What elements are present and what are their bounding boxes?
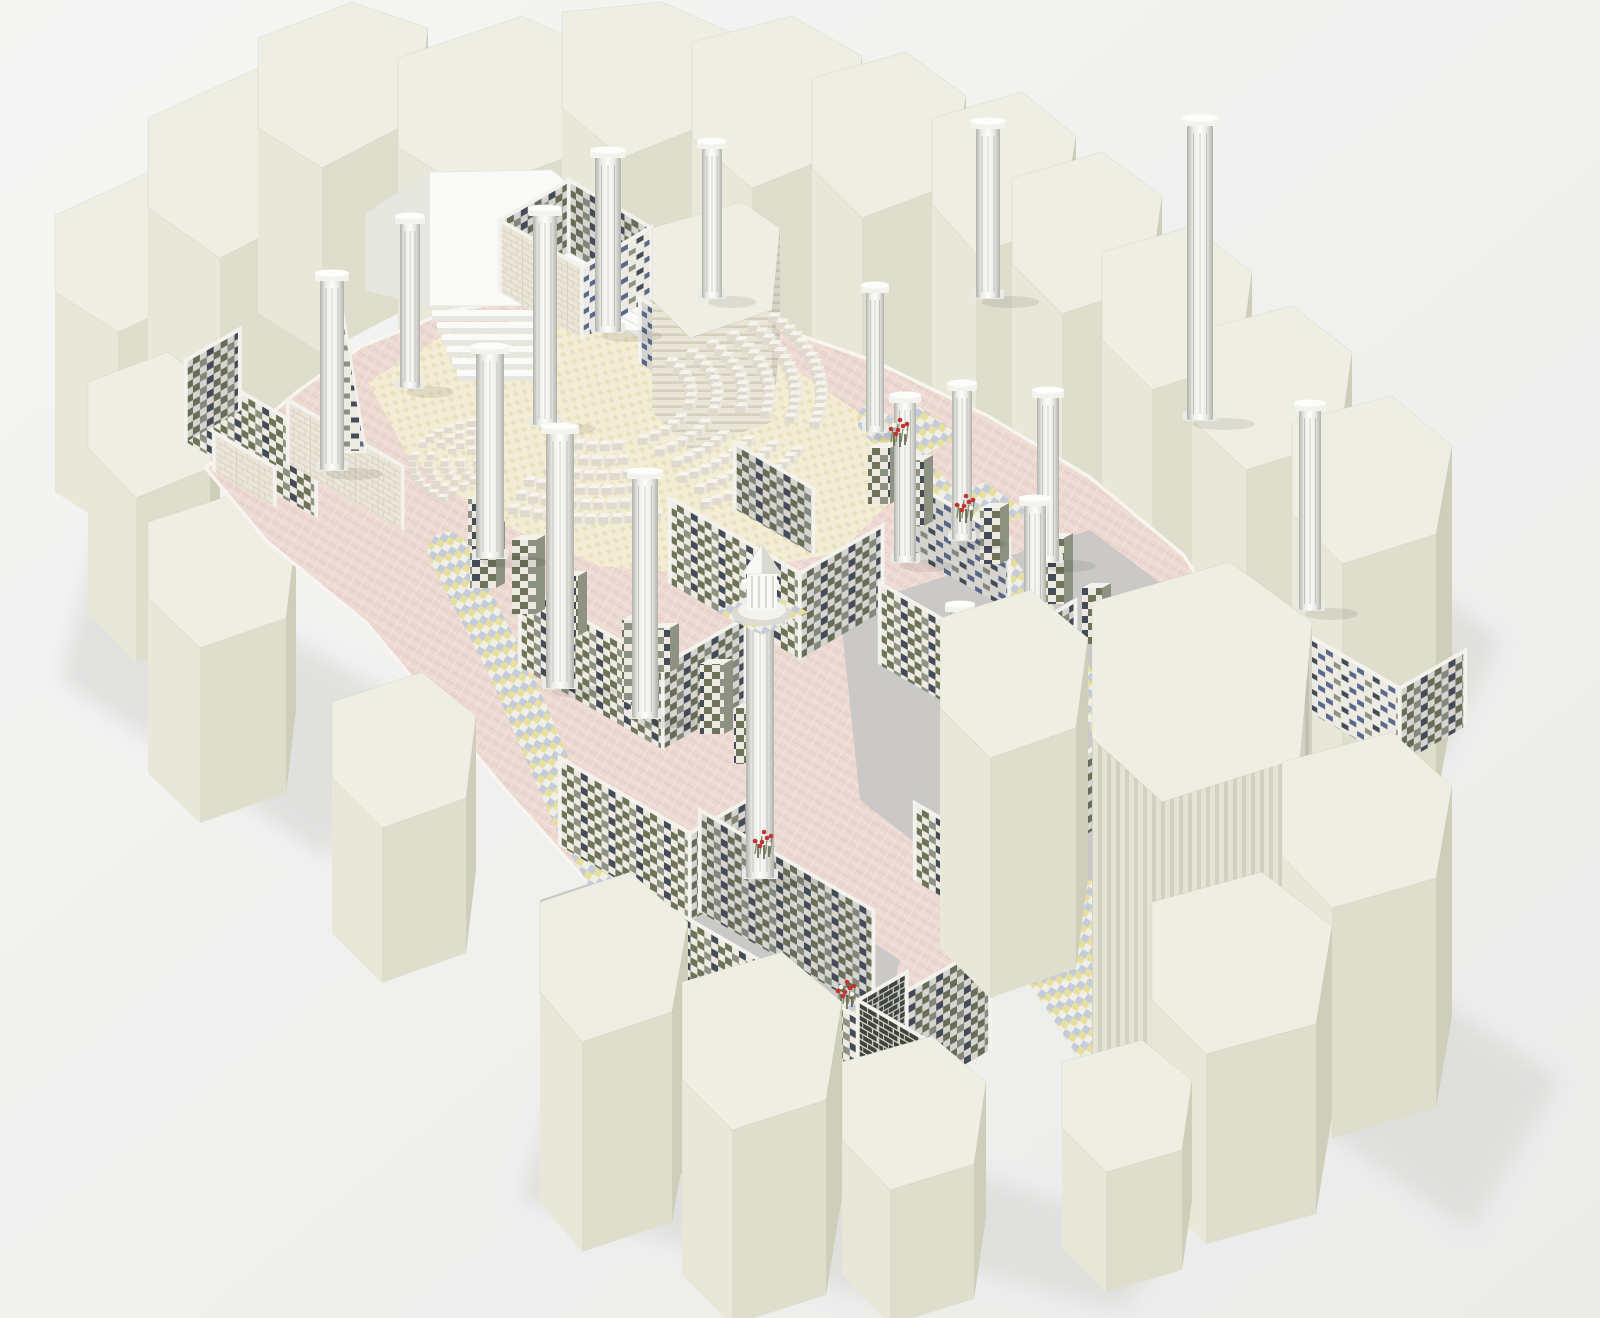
seat-front bbox=[415, 481, 423, 487]
plant-berry bbox=[964, 494, 969, 499]
seat-front bbox=[578, 459, 588, 466]
tower-side bbox=[724, 659, 733, 734]
mass-face bbox=[890, 1164, 974, 1318]
seat-front bbox=[441, 468, 449, 474]
building-mass bbox=[332, 672, 476, 983]
seat-front bbox=[520, 510, 530, 517]
seat-front bbox=[466, 439, 474, 445]
tower-front bbox=[512, 540, 536, 614]
seat-front bbox=[516, 494, 526, 501]
seat-front bbox=[618, 458, 628, 465]
seat-front bbox=[408, 468, 416, 474]
mass-face bbox=[1332, 878, 1436, 1138]
seat-front bbox=[524, 480, 534, 487]
seat-front bbox=[456, 444, 464, 450]
plant-berry bbox=[843, 990, 848, 995]
seat-front bbox=[700, 502, 710, 509]
seat-front bbox=[596, 474, 606, 481]
building-mass bbox=[682, 952, 842, 1318]
seat-front bbox=[671, 461, 681, 468]
mass-face bbox=[940, 708, 990, 998]
column-capital-top bbox=[945, 601, 975, 608]
seat-front bbox=[438, 497, 446, 503]
seat-front bbox=[467, 449, 475, 455]
checkered-tower bbox=[700, 659, 733, 734]
wall-end-post bbox=[238, 326, 242, 412]
seat-front bbox=[421, 487, 429, 493]
seat-front bbox=[694, 487, 704, 494]
mass-face bbox=[382, 798, 466, 983]
tower-front bbox=[980, 508, 1000, 564]
plant-berry bbox=[971, 498, 976, 503]
seat-front bbox=[533, 513, 543, 520]
seat-front bbox=[784, 417, 794, 424]
wall-end-post bbox=[733, 440, 737, 510]
seat-front bbox=[610, 473, 620, 480]
plant-berry bbox=[852, 984, 857, 989]
seat-front bbox=[456, 461, 464, 467]
seat-front bbox=[462, 474, 470, 480]
wall-end-post bbox=[878, 580, 882, 666]
column-capital-top bbox=[315, 270, 349, 277]
building-mass bbox=[540, 872, 688, 1252]
seat-front bbox=[426, 437, 434, 443]
tower-side bbox=[670, 623, 679, 672]
seat-front bbox=[605, 459, 615, 466]
building-mass bbox=[842, 1036, 986, 1318]
seat-front bbox=[457, 468, 465, 474]
column-capital-top bbox=[528, 205, 562, 212]
seat-front bbox=[434, 432, 442, 438]
plant-berry bbox=[760, 840, 765, 845]
seat-front bbox=[410, 455, 418, 461]
plant-berry bbox=[898, 418, 903, 423]
wall-end-post bbox=[580, 264, 584, 340]
seat-front bbox=[677, 476, 687, 483]
wall-end-post bbox=[567, 177, 571, 253]
plant-berry bbox=[896, 428, 901, 433]
checkered-tower bbox=[980, 503, 1009, 564]
seat-front bbox=[620, 502, 630, 509]
seat-front bbox=[613, 443, 623, 450]
seat-front bbox=[432, 481, 440, 487]
plant-berry bbox=[892, 423, 897, 428]
wall-end-post bbox=[401, 463, 405, 531]
seat-front bbox=[606, 503, 616, 510]
plant-berry bbox=[848, 986, 853, 991]
render-viewport bbox=[0, 0, 1600, 1318]
wall-end-post bbox=[498, 217, 502, 293]
column-capital-top bbox=[395, 213, 425, 220]
column-capital-top bbox=[471, 343, 509, 350]
column-capital-top bbox=[1294, 400, 1326, 407]
seat-front bbox=[637, 438, 647, 445]
seat-front bbox=[575, 488, 585, 495]
tower-side bbox=[924, 455, 933, 526]
wall-end-post bbox=[856, 997, 860, 1067]
building-mass bbox=[940, 590, 1088, 998]
wall-end-post bbox=[661, 662, 665, 750]
wall-end-post bbox=[184, 357, 188, 443]
tower-side bbox=[536, 535, 545, 614]
seat-front bbox=[654, 449, 664, 456]
seat-front bbox=[445, 438, 453, 444]
plant-berry bbox=[841, 994, 846, 999]
tower-front bbox=[868, 448, 890, 504]
wall-end-post bbox=[286, 397, 290, 465]
mass-face bbox=[200, 618, 286, 823]
mass-face bbox=[582, 1012, 672, 1252]
seat-front bbox=[586, 444, 596, 451]
seat-front bbox=[601, 488, 611, 495]
seat-front bbox=[598, 517, 608, 524]
plant-berry bbox=[836, 989, 841, 994]
seat-front bbox=[588, 488, 598, 495]
column-capital-top bbox=[1182, 115, 1218, 122]
seat-front bbox=[528, 497, 538, 504]
wall-end-post bbox=[698, 807, 702, 913]
plant-berry bbox=[767, 842, 772, 847]
plant-berry bbox=[969, 506, 974, 511]
seat-front bbox=[591, 459, 601, 466]
wall-end-post bbox=[212, 429, 216, 473]
plant-berry bbox=[960, 508, 965, 513]
plant-berry bbox=[769, 834, 774, 839]
plant-berry bbox=[850, 992, 855, 997]
seat-front bbox=[408, 462, 416, 468]
seat-front bbox=[450, 480, 458, 486]
seat-front bbox=[508, 508, 518, 515]
seat-front bbox=[419, 442, 427, 448]
plant-berry bbox=[756, 835, 761, 840]
seat-front bbox=[536, 483, 546, 490]
seat-front bbox=[760, 411, 770, 418]
mass-face bbox=[1206, 1024, 1316, 1244]
seat-front bbox=[444, 474, 452, 480]
seat-front bbox=[425, 468, 433, 474]
plant-berry bbox=[762, 830, 767, 835]
seat-front bbox=[455, 424, 463, 430]
seat-front bbox=[600, 444, 610, 451]
mass-face bbox=[1106, 1150, 1182, 1292]
mass-face bbox=[990, 728, 1076, 998]
mass-face bbox=[732, 1100, 826, 1318]
plant-berry bbox=[901, 424, 906, 429]
wall-end-post bbox=[273, 464, 277, 508]
tower-front bbox=[700, 664, 724, 734]
column-capital-top bbox=[861, 282, 889, 289]
column-capital-top bbox=[1019, 495, 1051, 502]
seat-front bbox=[424, 461, 432, 467]
plant-berry bbox=[845, 980, 850, 985]
plant-berry bbox=[889, 427, 894, 432]
checkered-tower bbox=[512, 535, 545, 614]
wall-end-post bbox=[913, 800, 917, 882]
plant-berry bbox=[905, 422, 910, 427]
plant-berry bbox=[753, 839, 758, 844]
plant-berry bbox=[894, 432, 899, 437]
seat-front bbox=[429, 492, 437, 498]
wall-end-post bbox=[558, 755, 562, 847]
seat-front bbox=[455, 433, 463, 439]
seat-front bbox=[426, 455, 434, 461]
plant-berry bbox=[958, 499, 963, 504]
seat-front bbox=[611, 517, 621, 524]
seat-front bbox=[440, 461, 448, 467]
seat-front bbox=[593, 503, 603, 510]
seat-front bbox=[439, 486, 447, 492]
wall-end-post bbox=[638, 295, 642, 365]
seat-front bbox=[583, 473, 593, 480]
plant-berry bbox=[955, 503, 960, 508]
seat-front bbox=[459, 485, 467, 491]
wall-end-post bbox=[1463, 647, 1467, 727]
seat-front bbox=[448, 449, 456, 455]
column-capital-top bbox=[947, 380, 977, 387]
column-capital-top bbox=[627, 468, 663, 475]
plant-berry bbox=[765, 836, 770, 841]
seat-front bbox=[411, 475, 419, 481]
column-capital-top bbox=[590, 147, 626, 154]
seat-front bbox=[437, 443, 445, 449]
seat-front bbox=[580, 503, 590, 510]
column-capital-top bbox=[1032, 387, 1064, 394]
seat-front bbox=[448, 491, 456, 497]
seat-front bbox=[573, 443, 583, 450]
plant-berry bbox=[758, 844, 763, 849]
plant-berry bbox=[967, 500, 972, 505]
plant-berry bbox=[839, 985, 844, 990]
seat-front bbox=[444, 428, 452, 434]
wall-end-post bbox=[668, 495, 672, 585]
plant-berry bbox=[962, 504, 967, 509]
architectural-model-render bbox=[0, 0, 1600, 1318]
seat-front bbox=[585, 517, 595, 524]
wall-end-post bbox=[811, 485, 815, 555]
column-capital-top bbox=[697, 138, 727, 145]
seat-front bbox=[468, 421, 476, 427]
seat-front bbox=[683, 403, 693, 410]
column-capital-top bbox=[889, 392, 921, 399]
wall-end-post bbox=[688, 830, 692, 922]
building-mass bbox=[1062, 1040, 1192, 1292]
seat-front bbox=[735, 406, 745, 413]
seat-front bbox=[467, 430, 475, 436]
plant-berry bbox=[903, 430, 908, 435]
seat-front bbox=[615, 487, 625, 494]
seat-front bbox=[809, 422, 819, 429]
column-capital-top bbox=[971, 118, 1005, 125]
column-capital-top bbox=[541, 423, 579, 430]
seat-front bbox=[427, 475, 435, 481]
tower-side bbox=[578, 571, 587, 636]
seat-front bbox=[708, 408, 718, 415]
tower-side bbox=[1000, 503, 1009, 564]
